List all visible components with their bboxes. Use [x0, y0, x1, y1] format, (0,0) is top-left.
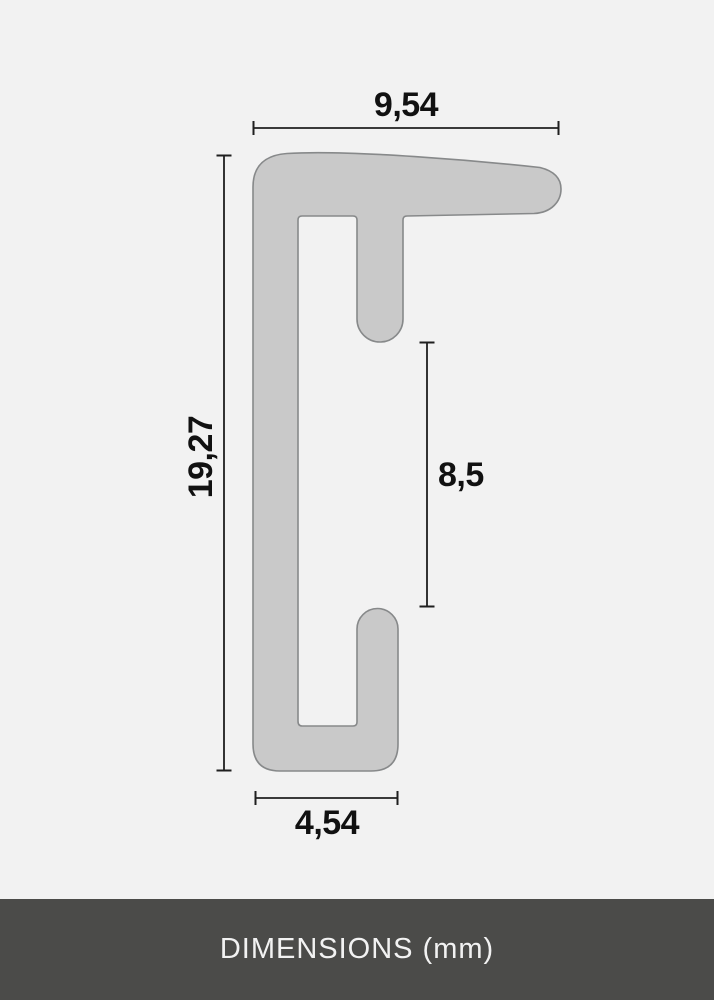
profile-drawing: [0, 0, 714, 1000]
dimension-label-top-width: 9,54: [374, 88, 438, 122]
dimension-label-rabbet-height: 8,5: [438, 458, 484, 492]
footer-bar: DIMENSIONS (mm): [0, 899, 714, 1000]
dimension-label-bottom-width: 4,54: [295, 806, 359, 840]
frame-profile-diagram: 9,54 19,27 8,5 4,54 DIMENSIONS (mm): [0, 0, 714, 1000]
dim-line-bottom-width: [256, 791, 398, 805]
footer-unit-label: DIMENSIONS (mm): [220, 933, 494, 966]
dimension-label-overall-height: 19,27: [184, 416, 218, 499]
dim-line-rabbet-height: [420, 343, 435, 607]
profile-shape: [253, 153, 561, 771]
